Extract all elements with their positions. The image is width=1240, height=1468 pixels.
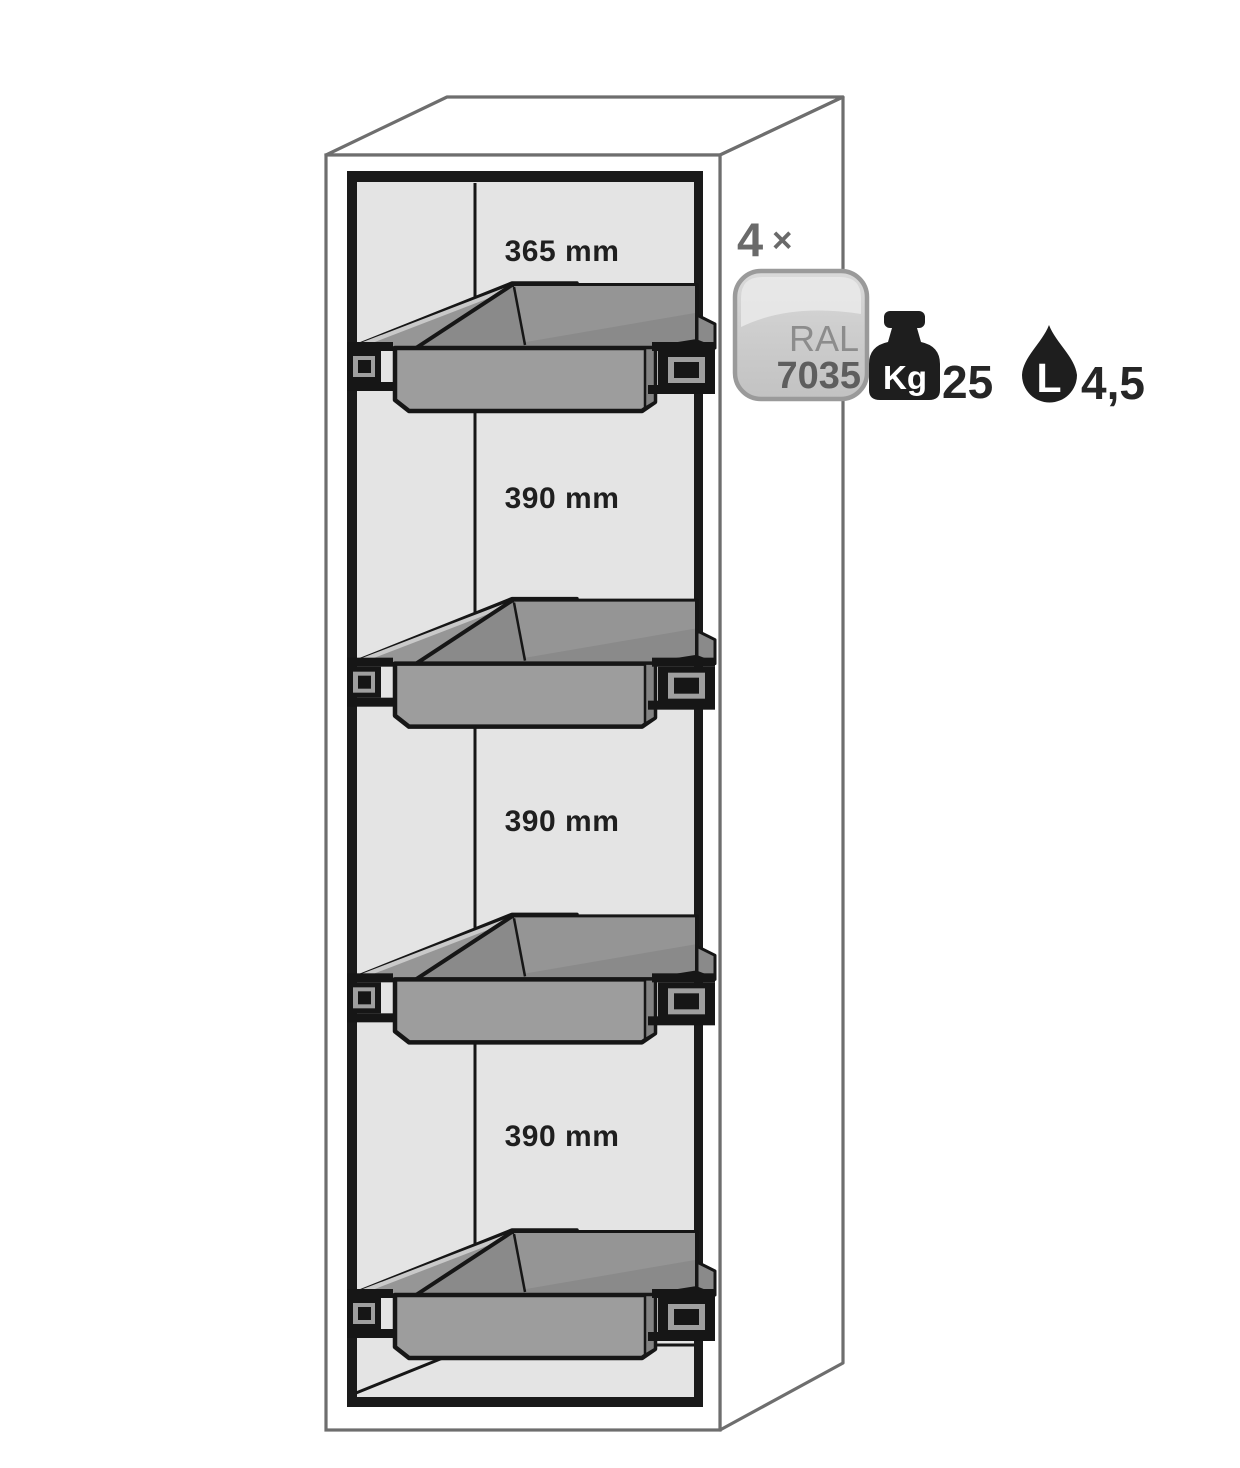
weight-kg-icon: Kg <box>869 311 940 400</box>
compartment-label-3: 390 mm <box>505 805 620 838</box>
compartment-label-2: 390 mm <box>505 482 620 515</box>
compartment-label-1: 365 mm <box>505 235 620 268</box>
cabinet-diagram: 365 mm 390 mm 390 mm 390 mm 4 × RAL 7035… <box>0 0 1240 1468</box>
liter-unit-label: L <box>1036 355 1061 401</box>
volume-capacity-spec: L 4,5 <box>1022 325 1145 409</box>
weight-handle <box>884 311 925 328</box>
ral-badge-line1: RAL <box>789 318 859 359</box>
ral-badge-line2: 7035 <box>776 355 861 397</box>
liter-drop-icon: L <box>1022 325 1077 402</box>
compartment-label-4: 390 mm <box>505 1120 620 1153</box>
load-capacity-value: 25 <box>942 356 993 408</box>
volume-capacity-value: 4,5 <box>1081 357 1145 409</box>
ral-7035-badge: RAL 7035 <box>735 271 867 399</box>
load-capacity-spec: Kg 25 <box>869 311 993 408</box>
diagram-canvas: 365 mm 390 mm 390 mm 390 mm 4 × RAL 7035… <box>0 0 1240 1468</box>
weight-unit-label: Kg <box>883 359 927 396</box>
multiply-icon: × <box>772 221 792 260</box>
quantity-number: 4 <box>737 213 763 266</box>
